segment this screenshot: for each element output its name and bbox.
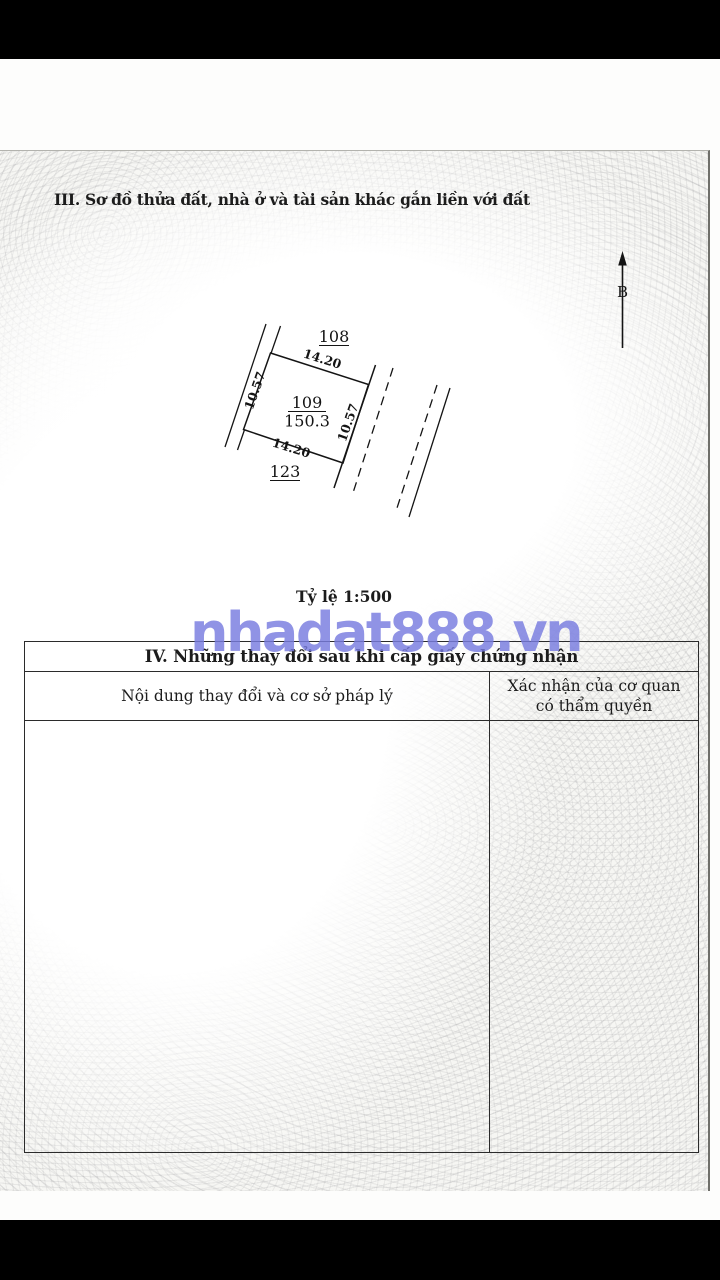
authority-confirmation-cell bbox=[489, 721, 698, 1152]
parcel-area-label: 150.3 bbox=[284, 412, 330, 431]
north-arrow-head bbox=[618, 251, 627, 266]
north-arrow: B bbox=[617, 251, 628, 348]
neighbor-parcel-top-label: 108 bbox=[319, 327, 350, 346]
column-header-authority-line2: có thẩm quyền bbox=[536, 696, 652, 716]
certificate-photo: { "section3": { "title": "III. Sơ đồ thử… bbox=[0, 0, 720, 1280]
column-header-authority: Xác nhận của cơ quan có thẩm quyền bbox=[489, 672, 698, 720]
column-header-authority-line1: Xác nhận của cơ quan bbox=[508, 676, 681, 696]
section4-table-header-row: Nội dung thay đổi và cơ sở pháp lý Xác n… bbox=[25, 672, 698, 721]
watermark-text: nhadat888.vn bbox=[190, 601, 610, 664]
photo-black-bar-bottom bbox=[0, 1220, 720, 1280]
section4-table-body-row bbox=[25, 721, 698, 1152]
column-header-change-content: Nội dung thay đổi và cơ sở pháp lý bbox=[25, 672, 489, 720]
change-content-cell bbox=[25, 721, 489, 1152]
north-label: B bbox=[617, 283, 628, 301]
parcel-sketch: B 108 123 109 150.3 14.20 14.20 10.57 10… bbox=[0, 240, 720, 540]
photo-black-bar-top bbox=[0, 0, 720, 59]
section4-table: IV. Những thay đổi sau khi cấp giấy chứn… bbox=[24, 641, 699, 1153]
parcel-number-label: 109 bbox=[292, 393, 323, 412]
section3-title: III. Sơ đồ thửa đất, nhà ở và tài sản kh… bbox=[54, 190, 494, 209]
neighbor-parcel-bottom-label: 123 bbox=[270, 462, 301, 481]
